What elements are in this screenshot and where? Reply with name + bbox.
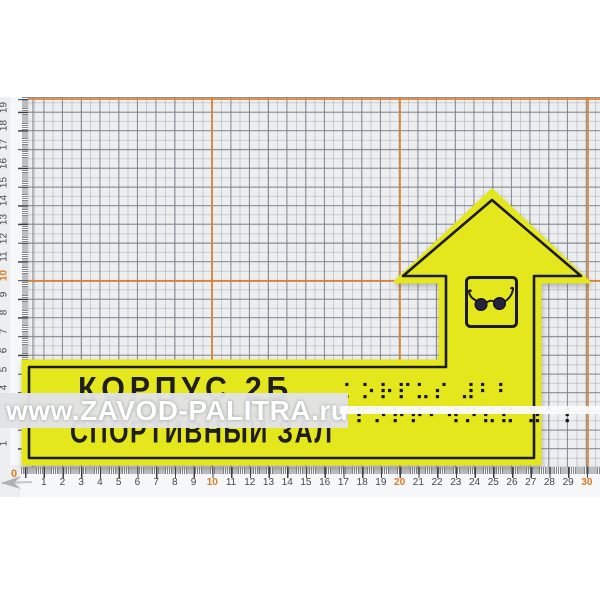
watermark-strip	[340, 406, 600, 414]
corner-clip	[0, 473, 34, 493]
watermark-url-text: www.ZAVOD-PALITRA.ru	[0, 393, 348, 428]
braille-row-1: ⠅⠕⠗⠏⠥⠎ ⠼⠃⠃	[342, 384, 514, 404]
product-photo-page: 0 12345678910111213141516171819202122232…	[0, 0, 600, 600]
cutting-mat-photo: 0 12345678910111213141516171819202122232…	[0, 97, 600, 497]
watermark-banner: www.ZAVOD-PALITRA.ru	[0, 393, 348, 428]
